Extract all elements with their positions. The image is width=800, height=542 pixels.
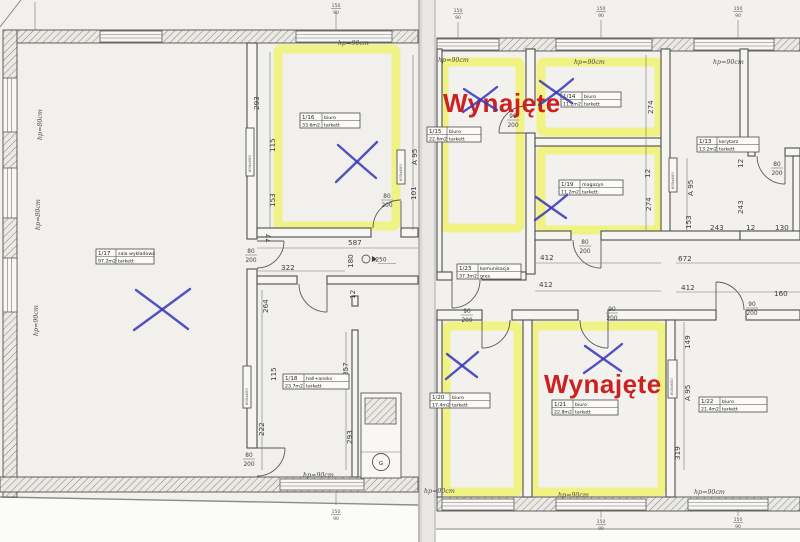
window-bottom-p1 — [280, 479, 364, 490]
svg-text:90: 90 — [735, 13, 741, 19]
dim: 115 — [269, 367, 278, 381]
radiator-label: 600x600 — [670, 172, 675, 189]
room-label-1-15: 1/15biuro 22.6m2tarkett — [427, 127, 481, 143]
svg-text:80: 80 — [245, 453, 253, 459]
gas-meter-label: G — [379, 461, 383, 467]
room-label-1-19: 1/19magazyn 11.2m2tarkett — [559, 180, 623, 196]
svg-text:200: 200 — [243, 462, 254, 468]
svg-text:150: 150 — [734, 517, 743, 523]
svg-text:90: 90 — [598, 13, 604, 19]
dim: 77 — [264, 234, 273, 243]
dim: 587 — [348, 238, 362, 247]
radiator-label: 600x600 — [398, 164, 403, 181]
svg-text:200: 200 — [381, 203, 392, 209]
hp-label: hp=90cm — [558, 492, 589, 499]
svg-text:1/16: 1/16 — [302, 115, 315, 121]
svg-text:200: 200 — [606, 316, 617, 322]
hp-label: hp=90cm — [338, 40, 369, 47]
svg-text:200: 200 — [746, 311, 757, 317]
dim: 412 — [540, 253, 554, 262]
svg-text:tarkett: tarkett — [719, 147, 735, 153]
rented-label-bottom: Wynajęte — [544, 369, 662, 399]
svg-text:200: 200 — [245, 258, 256, 264]
kitchen-appliance — [365, 398, 396, 424]
svg-text:150: 150 — [734, 6, 743, 12]
window-top-p2-c — [694, 39, 774, 50]
wall-int-p2-h3b — [601, 231, 740, 240]
room-label-1-16: 1/16biuro 33.6m2tarkett — [300, 113, 360, 129]
svg-text:biuro: biuro — [449, 129, 461, 135]
svg-text:21.4m2: 21.4m2 — [701, 407, 719, 413]
dim: 412 — [681, 283, 695, 292]
window-left-p1-c — [3, 258, 17, 312]
wall-int-p2-v2 — [661, 49, 670, 239]
wall-int-p2-h3c — [740, 231, 800, 240]
room-label-1-23: 1/23komunikacja 37.3m2gres — [457, 264, 521, 280]
dim: 12 — [746, 223, 755, 232]
dim: A 95 — [686, 180, 695, 196]
svg-text:tarkett: tarkett — [584, 102, 600, 108]
svg-text:33.6m2: 33.6m2 — [302, 123, 320, 129]
floor-plan-svg: G 600x600 600x600 600x600 600x600 600x60… — [0, 0, 800, 542]
svg-text:tarkett: tarkett — [452, 403, 468, 409]
kitchen-fixtures: G — [361, 393, 401, 478]
radiator-label: 600x600 — [247, 155, 252, 172]
dim: 264 — [261, 299, 270, 313]
svg-text:150: 150 — [332, 3, 341, 9]
svg-text:150: 150 — [597, 6, 606, 12]
svg-text:sala wykładowa: sala wykładowa — [118, 251, 155, 257]
svg-text:komunikacja: komunikacja — [480, 266, 510, 272]
svg-text:90: 90 — [455, 15, 461, 21]
wall-int-p2-v4 — [523, 320, 532, 497]
wall-int-p1-h2a — [257, 276, 297, 284]
dim: 153 — [268, 193, 277, 207]
svg-text:150: 150 — [332, 509, 341, 515]
dim: A 95 — [410, 149, 419, 165]
svg-text:97.2m2: 97.2m2 — [98, 259, 116, 265]
dim: 322 — [281, 263, 295, 272]
svg-text:tarkett: tarkett — [722, 407, 738, 413]
dim: 160 — [774, 289, 788, 298]
svg-text:tarkett: tarkett — [575, 410, 591, 416]
wall-int-p2-h1 — [535, 138, 661, 146]
dim: 115 — [268, 138, 277, 152]
svg-text:hall+aneks: hall+aneks — [306, 376, 333, 382]
room-label-1-18: 1/18hall+aneks 23.7m2tarkett — [283, 374, 349, 390]
svg-text:1/19: 1/19 — [561, 182, 574, 188]
dim: 412 — [539, 280, 553, 289]
svg-text:90: 90 — [735, 524, 741, 530]
dim: 274 — [644, 197, 653, 211]
hp-label: hp=80cm — [35, 199, 42, 230]
wall-int-p2-h5b — [512, 310, 578, 320]
svg-text:tarkett: tarkett — [118, 259, 134, 265]
room-label-1-17: 1/17sala wykładowa 97.2m2tarkett — [96, 249, 155, 265]
dim: 243 — [710, 223, 724, 232]
dim: 130 — [775, 223, 789, 232]
window-left-p1-b — [3, 168, 17, 218]
hp-label: hp=80cm — [37, 109, 44, 140]
svg-text:biuro: biuro — [722, 399, 734, 405]
dim: 153 — [684, 215, 693, 229]
svg-text:80: 80 — [581, 240, 589, 246]
svg-text:gres: gres — [480, 274, 491, 280]
svg-text:90: 90 — [463, 309, 471, 315]
svg-text:200: 200 — [771, 171, 782, 177]
svg-text:23.7m2: 23.7m2 — [285, 384, 303, 390]
room-label-1-20: 1/20biuro 17.4m2tarkett — [430, 393, 490, 409]
dim: 180 — [346, 254, 355, 268]
svg-text:90: 90 — [748, 302, 756, 308]
svg-text:1/20: 1/20 — [432, 395, 445, 401]
wall-int-p2-h5c — [608, 310, 716, 320]
dim: 319 — [673, 446, 682, 460]
scanned-floor-plan: G 600x600 600x600 600x600 600x600 600x60… — [0, 0, 800, 542]
window-top-p2-b — [556, 39, 652, 50]
window-top-p1-a — [100, 31, 162, 42]
dim: 12 — [643, 169, 652, 178]
wall-int-p2-left-a — [437, 49, 442, 274]
window-left-p1-a — [3, 78, 17, 132]
wall-int-p2-h5a — [437, 310, 482, 320]
svg-text:1/22: 1/22 — [701, 399, 713, 405]
dim: 12 — [736, 159, 745, 168]
svg-text:200: 200 — [579, 249, 590, 255]
dim: 293 — [252, 96, 261, 110]
dim: 149 — [683, 335, 692, 349]
svg-text:1/21: 1/21 — [554, 402, 566, 408]
svg-text:biuro: biuro — [452, 395, 464, 401]
svg-text:80: 80 — [383, 194, 391, 200]
window-size: 15090 — [331, 509, 341, 522]
dim: 222 — [257, 422, 266, 436]
window-bottom-p2-c — [688, 499, 768, 510]
hp-label: hp=90cm — [424, 488, 455, 495]
window-bottom-p2-b — [556, 499, 646, 510]
hp-label: hp=90cm — [574, 59, 605, 66]
svg-text:1/17: 1/17 — [98, 251, 111, 257]
wall-int-p1-v1b — [247, 269, 257, 448]
svg-text:150: 150 — [597, 519, 606, 525]
svg-text:1/18: 1/18 — [285, 376, 298, 382]
drain-label: A250 — [371, 258, 386, 264]
svg-text:17.4m2: 17.4m2 — [432, 403, 450, 409]
wall-int-p2-v1b — [526, 133, 535, 274]
svg-text:1/15: 1/15 — [429, 129, 442, 135]
svg-text:tarkett: tarkett — [324, 123, 340, 129]
wall-int-p2-h4a — [437, 272, 452, 280]
svg-text:200: 200 — [507, 123, 518, 129]
wall-int-p2-v5 — [666, 320, 675, 497]
radiator-label: 600x600 — [669, 378, 674, 395]
window-top-p2-a — [437, 39, 499, 50]
room-label-1-22: 1/22biuro 21.4m2tarkett — [699, 397, 767, 413]
room-label-1-21: 1/21biuro 22.8m2tarkett — [552, 400, 618, 416]
svg-text:90: 90 — [608, 307, 616, 313]
radiator-label: 600x600 — [244, 388, 249, 405]
dim: 293 — [345, 430, 354, 444]
hp-label: hp=90cm — [438, 57, 469, 64]
wall-int-p2-h2b — [785, 148, 800, 156]
room-label-1-14: 1/14biuro 11.2m2tarkett — [561, 92, 621, 108]
svg-text:1/13: 1/13 — [699, 139, 712, 145]
hp-label: hp=90cm — [694, 489, 725, 496]
dim: 101 — [409, 186, 418, 200]
dim: A 95 — [683, 385, 692, 401]
svg-text:150: 150 — [454, 8, 463, 14]
svg-text:11.2m2: 11.2m2 — [561, 190, 579, 196]
svg-text:22.8m2: 22.8m2 — [554, 410, 572, 416]
svg-text:korytarz: korytarz — [719, 139, 739, 145]
svg-text:biuro: biuro — [584, 94, 596, 100]
dim: 672 — [678, 254, 692, 263]
svg-text:magazyn: magazyn — [582, 183, 604, 188]
svg-text:37.3m2: 37.3m2 — [459, 274, 477, 280]
dim: 243 — [736, 200, 745, 214]
wall-int-p1-h1a — [257, 228, 371, 237]
hp-label: hp=90cm — [33, 305, 40, 336]
dim: 274 — [646, 100, 655, 114]
svg-text:biuro: biuro — [575, 402, 587, 408]
hp-label: hp=90cm — [713, 59, 744, 66]
svg-text:tarkett: tarkett — [582, 190, 598, 196]
wall-int-p1-h2b — [327, 276, 418, 284]
svg-text:90: 90 — [333, 10, 339, 16]
room-label-1-13: 1/13korytarz 13.2m2tarkett — [697, 137, 759, 153]
svg-text:90: 90 — [598, 526, 604, 532]
svg-text:1/23: 1/23 — [459, 266, 472, 272]
svg-text:90: 90 — [333, 516, 339, 522]
svg-text:tarkett: tarkett — [449, 137, 465, 143]
hp-label: hp=90cm — [303, 472, 334, 479]
svg-text:13.2m2: 13.2m2 — [699, 147, 717, 153]
svg-text:80: 80 — [247, 249, 255, 255]
window-bottom-p2-a — [442, 499, 514, 510]
svg-text:200: 200 — [461, 318, 472, 324]
svg-text:biuro: biuro — [324, 115, 336, 121]
wall-int-p2-right — [793, 156, 800, 234]
svg-text:22.6m2: 22.6m2 — [429, 137, 447, 143]
wall-int-p2-h3a — [535, 231, 571, 240]
wall-int-p1-h1b — [401, 228, 418, 237]
wall-int-p1-v2b — [352, 330, 358, 477]
svg-text:tarkett: tarkett — [306, 384, 322, 390]
dim: 12 — [348, 290, 357, 299]
svg-text:80: 80 — [773, 162, 781, 168]
